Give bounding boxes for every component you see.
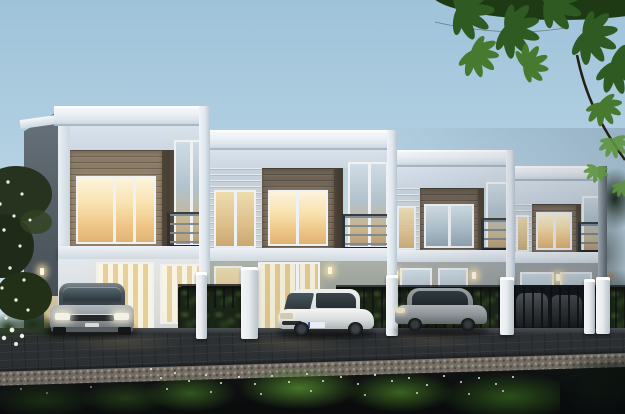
window-mullion xyxy=(296,192,299,244)
car-a-headlight-right xyxy=(114,313,129,320)
unit2-bay-window xyxy=(268,190,328,246)
left-blossom-tree xyxy=(0,162,66,352)
unit2-parapet xyxy=(206,130,396,150)
unit1-bay-window xyxy=(76,176,156,244)
car-silver-hatchback xyxy=(395,288,487,333)
gate-pillar-5 xyxy=(584,279,595,334)
gate-bars xyxy=(514,285,584,333)
unit2-wall-lamp xyxy=(328,267,332,274)
unit4-side-window xyxy=(516,215,529,252)
unit4-floor-band xyxy=(513,252,603,263)
unit1-parapet xyxy=(54,106,210,126)
unit2-floor-band xyxy=(208,248,394,261)
car-b-plate xyxy=(308,322,325,328)
foreground-grass-right xyxy=(545,352,625,414)
car-b-wheel-rear xyxy=(348,322,363,336)
car-b-wheel-front xyxy=(294,322,309,336)
car-b-headlight xyxy=(280,313,293,319)
gate-pillar-1 xyxy=(196,272,207,339)
unit4-bay-window xyxy=(536,212,572,250)
foreground-flowers xyxy=(150,368,152,370)
top-right-tree-canopy xyxy=(375,0,625,200)
car-a-windshield xyxy=(63,287,121,305)
car-b-side-glass xyxy=(316,293,356,308)
unit3-bay-window xyxy=(424,204,474,248)
window-mullion xyxy=(234,192,237,246)
fence-left xyxy=(178,284,244,308)
car-c-headlight xyxy=(396,308,405,313)
unit3-floor-band xyxy=(394,250,513,262)
window-mullion xyxy=(448,206,451,246)
unit3-wall-lamp-right xyxy=(472,272,476,279)
unit2-side-window xyxy=(214,190,256,248)
car-c-wheel-front xyxy=(408,318,422,331)
car-c-wheel-rear xyxy=(461,318,475,331)
unit3-side-window xyxy=(397,206,416,250)
foreground-shrubs-left xyxy=(0,376,170,414)
unit2-balcony-railing xyxy=(342,214,392,250)
gate-section xyxy=(514,285,584,333)
townhouse-dusk-rendering xyxy=(0,0,625,414)
window-mullion xyxy=(113,178,116,242)
gate-pillar-2 xyxy=(241,267,258,339)
unit1-floor-band xyxy=(58,246,208,259)
car-a-grille xyxy=(70,315,114,321)
car-white-hatchback xyxy=(278,289,374,336)
car-c-glass xyxy=(412,291,468,305)
foreground-shrubs-center xyxy=(140,360,560,414)
window-mullion xyxy=(133,178,136,242)
window-mullion xyxy=(553,214,556,248)
unit4-wall-lamp xyxy=(556,274,560,281)
gate-pillar-4 xyxy=(500,277,514,335)
car-a-wheel-right xyxy=(118,327,131,335)
gate-pillar-6 xyxy=(596,277,610,334)
